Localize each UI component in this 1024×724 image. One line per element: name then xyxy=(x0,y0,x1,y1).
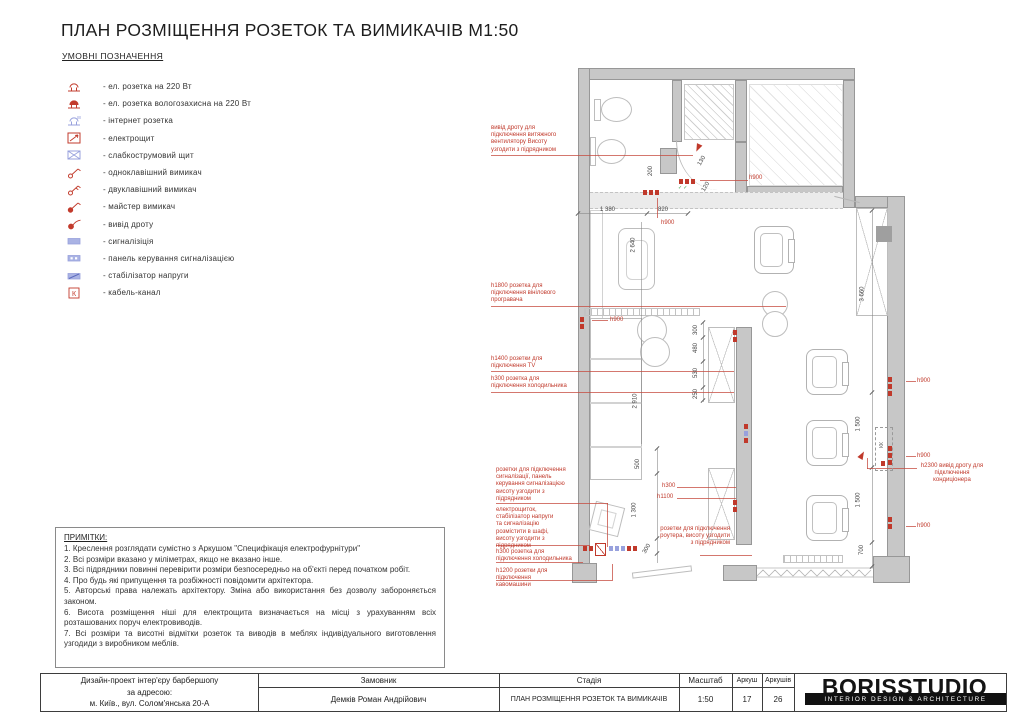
plan-annotation: h2300 вивід дроту для підключення кондиц… xyxy=(920,463,984,485)
plan-annotation: h300 розетка для підключення холодильник… xyxy=(496,549,575,563)
dimension-label: 3 660 xyxy=(860,286,866,301)
leader-line xyxy=(496,503,608,504)
green-check-marks: ✓✓ xyxy=(678,185,688,191)
socket-symbol xyxy=(615,546,619,551)
dimension-label: 1 500 xyxy=(856,416,862,431)
title-block: Дизайн-проект інтер'єру барбершопу за ад… xyxy=(40,673,1007,712)
dimension-label: 120 xyxy=(701,181,711,193)
leader-line xyxy=(867,458,868,469)
dimension-label: 300 xyxy=(693,325,699,335)
dimension-label: 300 xyxy=(642,543,652,555)
stage-label: Стадія xyxy=(499,674,679,687)
height-label: h900 xyxy=(917,453,930,459)
socket-symbol xyxy=(888,377,892,382)
leader-line xyxy=(677,498,736,499)
plan-annotation: h1800 розетка для підключення вінілового… xyxy=(491,283,566,305)
plan-annotation: електрощиток, стабілізатор напруги та си… xyxy=(496,507,558,550)
drawing-sheet: ПЛАН РОЗМІЩЕННЯ РОЗЕТОК ТА ВИМИКАЧІВ М1:… xyxy=(0,0,1024,724)
dimension-label: 1 300 xyxy=(632,502,638,517)
height-label: h900 xyxy=(917,378,930,384)
dimension-label: 1 380 xyxy=(600,207,615,213)
socket-symbol xyxy=(643,190,647,195)
socket-symbol xyxy=(888,517,892,522)
socket-symbol xyxy=(888,384,892,389)
socket-symbol xyxy=(583,546,587,551)
leader-line xyxy=(700,555,752,556)
dimension-label: 2 640 xyxy=(631,237,637,252)
dimension-tick xyxy=(701,398,706,403)
height-label: h900 xyxy=(917,523,930,529)
leader-line xyxy=(491,306,786,307)
sheet-value: 17 xyxy=(732,687,762,711)
sheets-label: Аркушів xyxy=(762,674,794,687)
socket-symbol xyxy=(609,546,613,551)
scale-label: Масштаб xyxy=(679,674,732,687)
leader-line xyxy=(491,155,693,156)
height-label: h900 xyxy=(661,220,674,226)
socket-symbol xyxy=(679,179,683,184)
socket-symbol xyxy=(580,324,584,329)
plan-annotation: вивід дроту для підключення витяжного ве… xyxy=(491,125,571,154)
plan-annotation: розетки для підключення сигналізації, па… xyxy=(496,467,566,503)
customer-value: Демків Роман Андрійович xyxy=(258,687,499,711)
socket-symbol xyxy=(744,431,748,436)
project-line: Дизайн-проект інтер'єру барбершопу xyxy=(81,675,218,687)
socket-symbol xyxy=(733,330,737,335)
plan-annotation: h1400 розетки для підключення TV xyxy=(491,356,566,370)
socket-symbol xyxy=(733,500,737,505)
socket-symbol xyxy=(744,424,748,429)
dimension-label: 700 xyxy=(859,545,865,555)
dimension-label: 130 xyxy=(697,155,707,167)
leader-line xyxy=(906,526,916,527)
height-label: h1100 xyxy=(657,494,673,500)
dimension-label: 250 xyxy=(693,389,699,399)
socket-symbol xyxy=(633,546,637,551)
leader-line xyxy=(607,503,608,547)
socket-symbol xyxy=(733,507,737,512)
socket-symbol xyxy=(881,461,885,466)
plan-annotations-layer: 1 3808202001301202 6402 9103004805302505… xyxy=(0,0,1024,724)
stage-value: ПЛАН РОЗМІЩЕННЯ РОЗЕТОК ТА ВИМИКАЧІВ xyxy=(499,687,679,711)
project-line: м. Київ., вул. Солом'янська 20-А xyxy=(90,698,210,710)
title-block-divider xyxy=(794,674,795,711)
height-label: h300 xyxy=(662,483,675,489)
socket-symbol xyxy=(649,190,653,195)
socket-symbol xyxy=(580,317,584,322)
socket-symbol xyxy=(685,179,689,184)
socket-symbol xyxy=(888,524,892,529)
customer-label: Замовник xyxy=(258,674,499,687)
height-label: h900 xyxy=(749,175,762,181)
dimension-label: 530 xyxy=(693,368,699,378)
plan-annotation: h300 розетка для підключення холодильник… xyxy=(491,376,570,390)
leader-line xyxy=(906,381,916,382)
socket-symbol xyxy=(655,190,659,195)
dimension-tick xyxy=(686,211,691,216)
dimension-label: 820 xyxy=(658,207,668,213)
leader-line xyxy=(677,487,736,488)
leader-line xyxy=(700,180,748,181)
cable-channel-label: КК xyxy=(879,442,885,448)
dimension-label: 480 xyxy=(693,343,699,353)
wire-outlet-arrow xyxy=(857,450,866,460)
dimension-line xyxy=(578,213,688,214)
socket-symbol xyxy=(691,179,695,184)
socket-symbol xyxy=(733,337,737,342)
project-address: Дизайн-проект інтер'єру барбершопу за ад… xyxy=(41,674,258,711)
dimension-tick xyxy=(870,564,875,569)
dimension-label: 1 500 xyxy=(856,492,862,507)
leader-line xyxy=(592,320,608,321)
sheets-value: 26 xyxy=(762,687,794,711)
height-label: h900 xyxy=(610,317,623,323)
electrical-panel-symbol xyxy=(595,543,606,556)
studio-logo-subtitle: INTERIOR DESIGN & ARCHITECTURE xyxy=(805,693,1006,705)
plan-annotation: h1200 розетки для підключення кавомашини xyxy=(496,568,564,590)
socket-symbol xyxy=(589,546,593,551)
project-line: за адресою: xyxy=(127,687,172,699)
leader-line xyxy=(906,456,916,457)
dimension-label: 2 910 xyxy=(633,393,639,408)
scale-value: 1:50 xyxy=(679,687,732,711)
plan-annotation: розетки для підключення роутера, висоту … xyxy=(656,526,730,548)
socket-symbol xyxy=(621,546,625,551)
leader-line xyxy=(612,564,613,580)
socket-symbol xyxy=(888,391,892,396)
dimension-label: 500 xyxy=(635,459,641,469)
sheet-label: Аркуш xyxy=(732,674,762,687)
wire-outlet-arrow xyxy=(694,143,703,153)
dimension-line xyxy=(641,222,642,444)
socket-symbol xyxy=(627,546,631,551)
socket-symbol xyxy=(744,438,748,443)
dimension-label: 200 xyxy=(648,166,654,176)
